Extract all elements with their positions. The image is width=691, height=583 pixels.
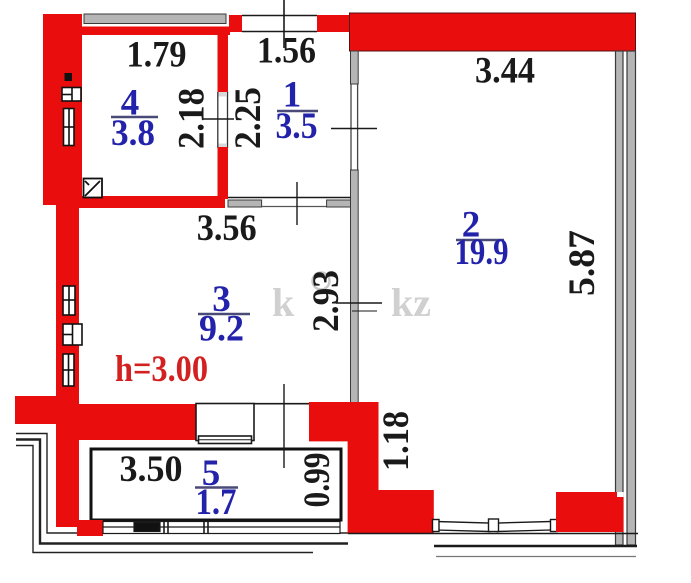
svg-text:5.87: 5.87 [562, 230, 603, 296]
svg-text:kz: kz [391, 280, 431, 325]
svg-text:3.56: 3.56 [197, 208, 257, 249]
svg-text:1.56: 1.56 [257, 31, 316, 72]
svg-text:k: k [272, 280, 295, 325]
svg-text:3.50: 3.50 [120, 449, 183, 490]
svg-text:19.9: 19.9 [455, 232, 509, 273]
svg-text:2.18: 2.18 [172, 88, 213, 149]
svg-text:9.2: 9.2 [199, 309, 244, 350]
svg-text:h=3.00: h=3.00 [115, 349, 208, 390]
svg-text:1.7: 1.7 [196, 482, 237, 523]
svg-text:3.8: 3.8 [111, 113, 155, 154]
svg-text:3.5: 3.5 [276, 106, 318, 147]
svg-text:1.79: 1.79 [127, 35, 187, 76]
svg-text:0.99: 0.99 [297, 453, 338, 508]
svg-text:3.44: 3.44 [475, 51, 535, 92]
svg-text:1.18: 1.18 [376, 411, 417, 471]
svg-text:2.93: 2.93 [306, 270, 347, 332]
svg-text:2.25: 2.25 [228, 87, 269, 149]
